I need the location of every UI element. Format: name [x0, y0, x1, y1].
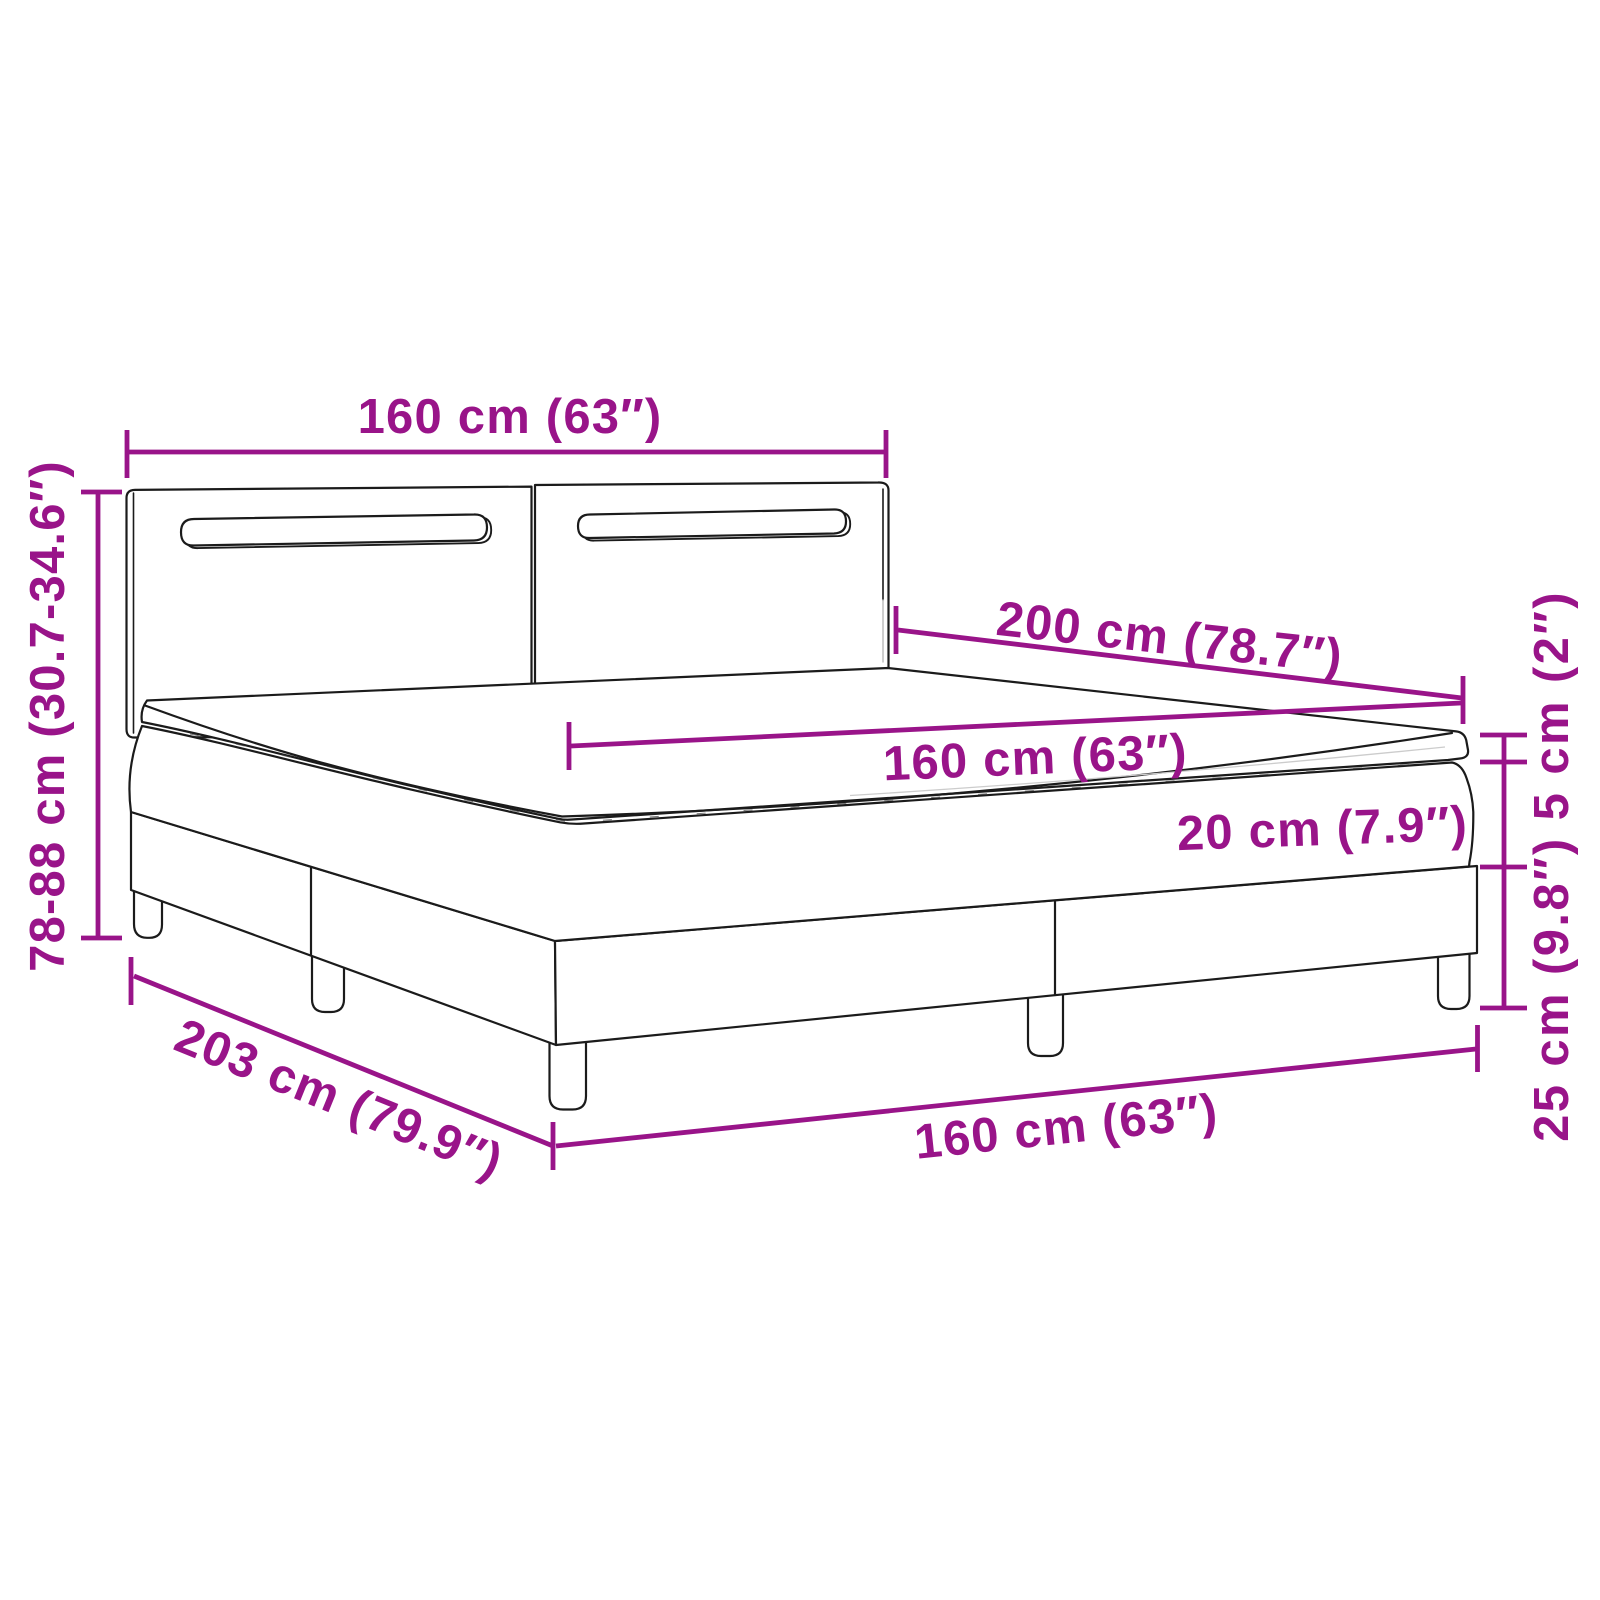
svg-text:160 cm (63″): 160 cm (63″) — [358, 390, 663, 444]
svg-text:25 cm (9.8″) 5 cm (2″): 25 cm (9.8″) 5 cm (2″) — [1525, 590, 1579, 1142]
svg-text:78-88 cm (30.7-34.6″): 78-88 cm (30.7-34.6″) — [21, 460, 75, 972]
svg-text:20 cm (7.9″): 20 cm (7.9″) — [1176, 797, 1469, 861]
